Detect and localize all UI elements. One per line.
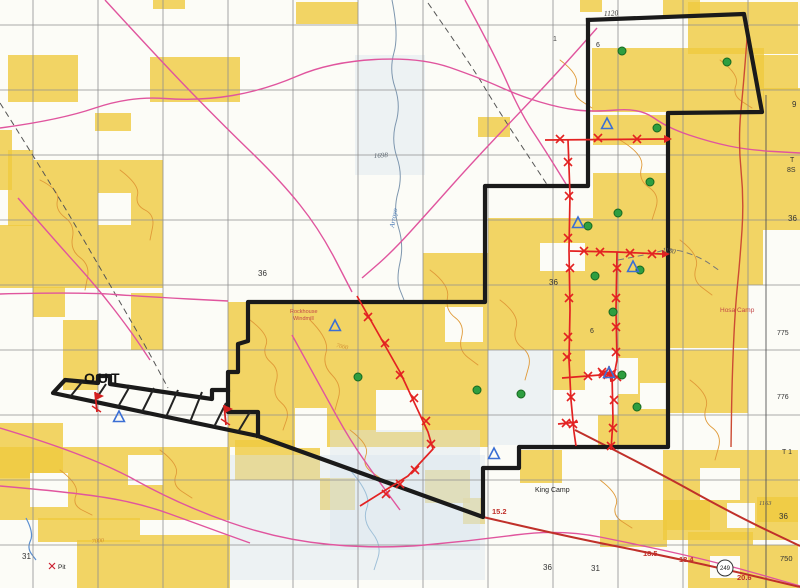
map-label: 31: [22, 552, 31, 561]
map-label: 15.2: [492, 507, 507, 516]
map-label: 36: [258, 269, 267, 278]
map-label: 7000: [92, 538, 104, 545]
well-marker: [618, 47, 626, 55]
parcel: [95, 113, 131, 131]
well-marker: [633, 403, 641, 411]
map-label: OUT: [84, 370, 123, 386]
fence-line: [545, 139, 664, 140]
parcel: [688, 2, 798, 54]
well-marker: [646, 178, 654, 186]
map-label: 36: [788, 214, 797, 223]
well-marker: [354, 373, 362, 381]
parcel: [131, 293, 163, 350]
map-frame: 249 OUT112011501698ArroyoRockhouseWindmi…: [0, 0, 800, 588]
parcel: [668, 350, 748, 413]
parcel: [488, 285, 668, 350]
parcel: [600, 520, 667, 547]
map-label: Hosa Camp: [720, 307, 755, 314]
parcel: [38, 518, 140, 542]
map-label: 775: [777, 330, 789, 337]
map-label: King Camp: [535, 487, 570, 494]
map-label: 36: [779, 512, 788, 521]
parcel: [663, 500, 710, 530]
map-label: 1120: [604, 8, 619, 18]
well-marker: [609, 308, 617, 316]
parcel: [77, 540, 140, 588]
well-marker: [618, 371, 626, 379]
parcel: [423, 253, 488, 302]
parcel: [8, 150, 33, 226]
route-shield-label: 249: [720, 566, 731, 572]
parcel: [668, 220, 763, 285]
map-label: 18.5: [643, 549, 658, 558]
map-label: 20.6: [737, 573, 752, 582]
map-label: 8S: [787, 167, 796, 174]
well-marker: [584, 222, 592, 230]
map-label: 36: [549, 278, 558, 287]
map-label: 31: [591, 564, 600, 573]
parcel: [8, 55, 78, 102]
map-label: Pit: [58, 564, 66, 571]
map-label: 18.4: [679, 555, 694, 564]
map-label: 9: [792, 100, 797, 109]
parcel: [520, 450, 562, 483]
map-label: T 1: [782, 449, 792, 456]
map-label: Rockhouse: [290, 309, 318, 315]
map-label: 750: [780, 554, 793, 563]
parcel: [593, 173, 668, 218]
map-canvas: 249 OUT112011501698ArroyoRockhouseWindmi…: [0, 0, 800, 588]
map-label: 6: [590, 328, 594, 335]
well-marker: [473, 386, 481, 394]
well-marker: [517, 390, 525, 398]
parcel: [296, 2, 358, 24]
map-label: T: [790, 157, 795, 164]
well-marker: [591, 272, 599, 280]
parcel: [598, 415, 668, 447]
parcel: [153, 0, 185, 9]
map-label: 776: [777, 394, 789, 401]
map-label: 36: [543, 563, 552, 572]
route-shield: 249: [717, 560, 733, 576]
map-label: 1: [553, 36, 557, 43]
map-label: 6: [596, 42, 600, 49]
parcel: [755, 55, 798, 90]
parcel: [580, 0, 602, 12]
parcel: [668, 113, 763, 220]
well-marker: [614, 209, 622, 217]
parcel: [140, 535, 230, 588]
parcel: [763, 88, 800, 230]
map-label: 1163: [759, 500, 772, 507]
map-label: 1698: [374, 151, 389, 160]
parcel: [33, 287, 65, 317]
well-marker: [723, 58, 731, 66]
map-label: Windmill: [293, 316, 314, 322]
parcel: [0, 225, 33, 288]
well-marker: [653, 124, 661, 132]
